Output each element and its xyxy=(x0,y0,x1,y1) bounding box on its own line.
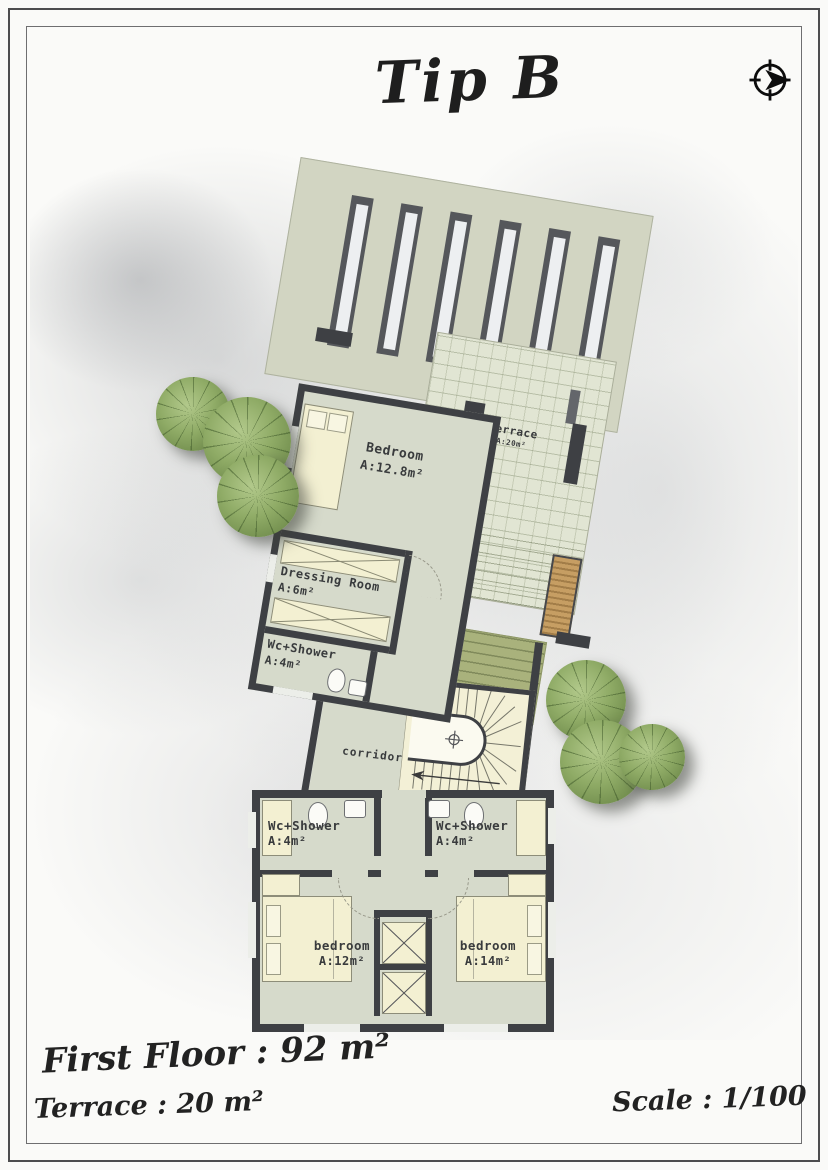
north-arrow-icon xyxy=(742,52,798,108)
pillow xyxy=(527,905,542,937)
plan-sheet: Terrace A:20m² xyxy=(0,0,828,1170)
room-name: bedroom xyxy=(282,938,402,954)
window xyxy=(548,808,556,844)
pergola-slot-glass xyxy=(334,204,369,342)
lower-room-block: Wc+Shower A:4m² Wc+Shower A:4m² bedroom … xyxy=(252,790,554,1032)
door-swing-arc xyxy=(403,555,448,600)
pillow xyxy=(306,409,328,430)
terrace-area-text: Terrace : 20 m² xyxy=(34,1086,265,1125)
window xyxy=(548,902,556,958)
pergola-slot xyxy=(376,203,423,357)
first-floor-area-text: First Floor : 92 m² xyxy=(41,1026,391,1081)
pergola-slot xyxy=(327,195,374,349)
sink xyxy=(428,800,450,818)
tree xyxy=(619,724,685,790)
tree xyxy=(217,455,299,537)
room-area: A:14m² xyxy=(428,954,548,970)
pillow xyxy=(266,905,281,937)
shaft-wall xyxy=(374,910,432,917)
pergola-slot-glass xyxy=(383,212,418,350)
room-name: Wc+Shower xyxy=(436,818,546,834)
window xyxy=(248,902,256,958)
room-area: A:4m² xyxy=(436,834,546,850)
wardrobe xyxy=(508,874,546,896)
room-label-bedroom-right: bedroom A:14m² xyxy=(428,938,548,970)
plan-title: Tip B xyxy=(299,40,641,120)
hall-opening xyxy=(382,790,426,798)
scale-text: Scale : 1/100 xyxy=(612,1081,808,1119)
interior-wall xyxy=(425,870,438,877)
interior-wall xyxy=(368,870,381,877)
room-area: A:4m² xyxy=(268,834,378,850)
sink xyxy=(347,679,367,698)
room-label-bedroom-master: Bedroom A:12.8m² xyxy=(327,434,461,488)
window xyxy=(266,554,278,583)
wardrobe xyxy=(262,874,300,896)
pillow xyxy=(266,943,281,975)
room-label-wc-shower-left: Wc+Shower A:4m² xyxy=(268,818,378,850)
wall-segment xyxy=(555,631,591,648)
window xyxy=(444,1024,508,1032)
sink xyxy=(344,800,366,818)
window xyxy=(248,812,256,848)
shaft-box xyxy=(382,972,426,1014)
window xyxy=(272,686,313,700)
room-area: A:12m² xyxy=(282,954,402,970)
room-label-wc-shower-right: Wc+Shower A:4m² xyxy=(436,818,546,850)
room-name: Wc+Shower xyxy=(268,818,378,834)
room-name: bedroom xyxy=(428,938,548,954)
room-label-bedroom-left: bedroom A:12m² xyxy=(282,938,402,970)
pillow xyxy=(327,413,349,434)
